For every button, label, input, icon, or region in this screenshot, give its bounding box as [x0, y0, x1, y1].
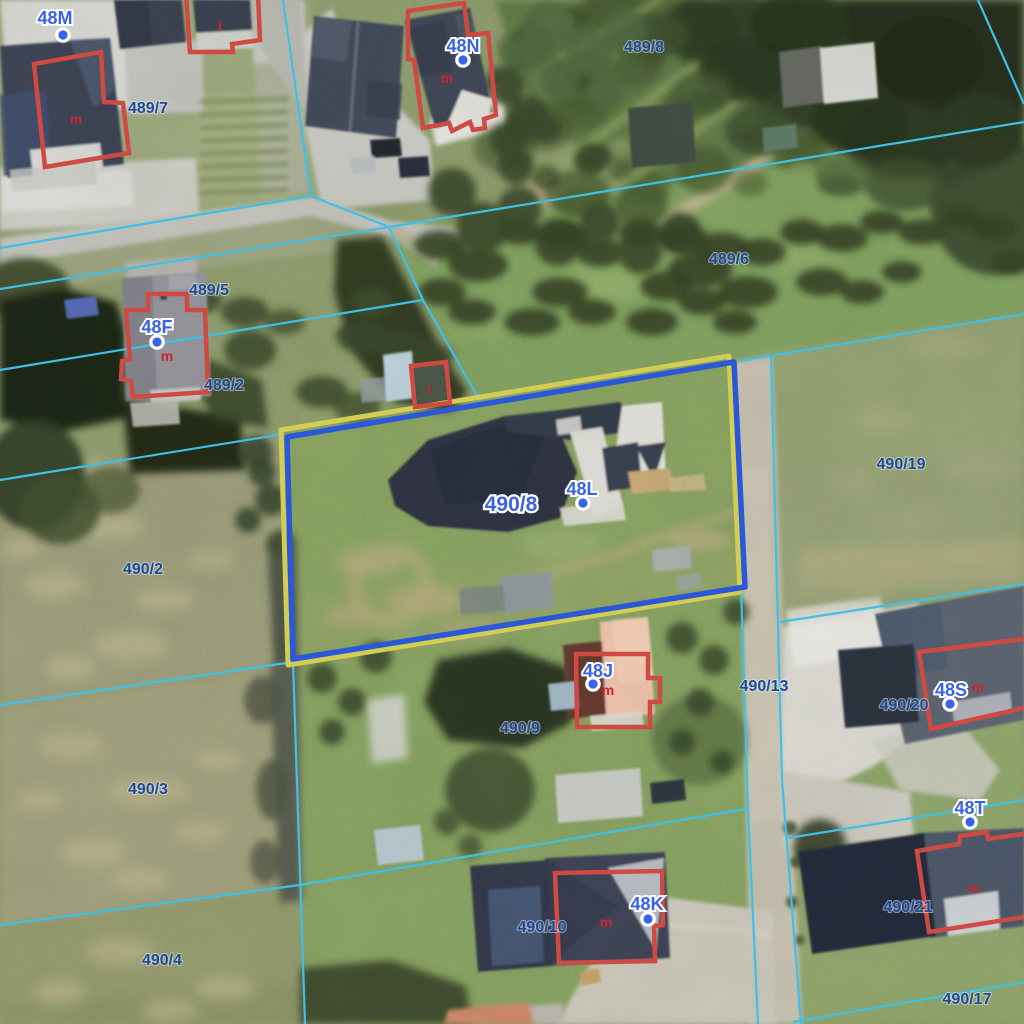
- svg-text:48K: 48K: [630, 894, 663, 914]
- svg-text:489/2: 489/2: [204, 377, 244, 394]
- svg-text:490/13: 490/13: [740, 678, 789, 695]
- svg-text:i: i: [218, 18, 222, 34]
- svg-text:490/19: 490/19: [877, 456, 926, 473]
- svg-text:490/17: 490/17: [943, 991, 992, 1008]
- svg-text:489/5: 489/5: [189, 282, 229, 299]
- svg-text:490/9: 490/9: [500, 720, 540, 737]
- svg-text:m: m: [161, 348, 173, 364]
- svg-text:48F: 48F: [141, 317, 172, 337]
- svg-text:490/20: 490/20: [880, 697, 929, 714]
- svg-text:490/3: 490/3: [128, 781, 168, 798]
- svg-text:48J: 48J: [583, 661, 613, 681]
- svg-text:490/10: 490/10: [518, 919, 567, 936]
- svg-text:m: m: [70, 111, 82, 127]
- svg-text:m: m: [441, 70, 453, 86]
- svg-text:m: m: [602, 682, 614, 698]
- svg-text:489/8: 489/8: [624, 39, 664, 56]
- svg-text:490/21: 490/21: [884, 899, 933, 916]
- svg-text:489/7: 489/7: [128, 100, 168, 117]
- svg-text:m: m: [600, 914, 612, 930]
- svg-text:i: i: [427, 381, 431, 397]
- svg-text:489/6: 489/6: [709, 251, 749, 268]
- svg-text:48L: 48L: [566, 479, 597, 499]
- svg-text:m: m: [968, 880, 980, 896]
- svg-text:490/2: 490/2: [123, 561, 163, 578]
- svg-text:48S: 48S: [935, 680, 967, 700]
- svg-text:48M: 48M: [37, 8, 72, 28]
- svg-text:48N: 48N: [446, 36, 479, 56]
- svg-text:48T: 48T: [954, 798, 985, 818]
- svg-text:490/8: 490/8: [485, 493, 538, 516]
- svg-text:m: m: [972, 679, 984, 695]
- svg-text:490/4: 490/4: [142, 952, 182, 969]
